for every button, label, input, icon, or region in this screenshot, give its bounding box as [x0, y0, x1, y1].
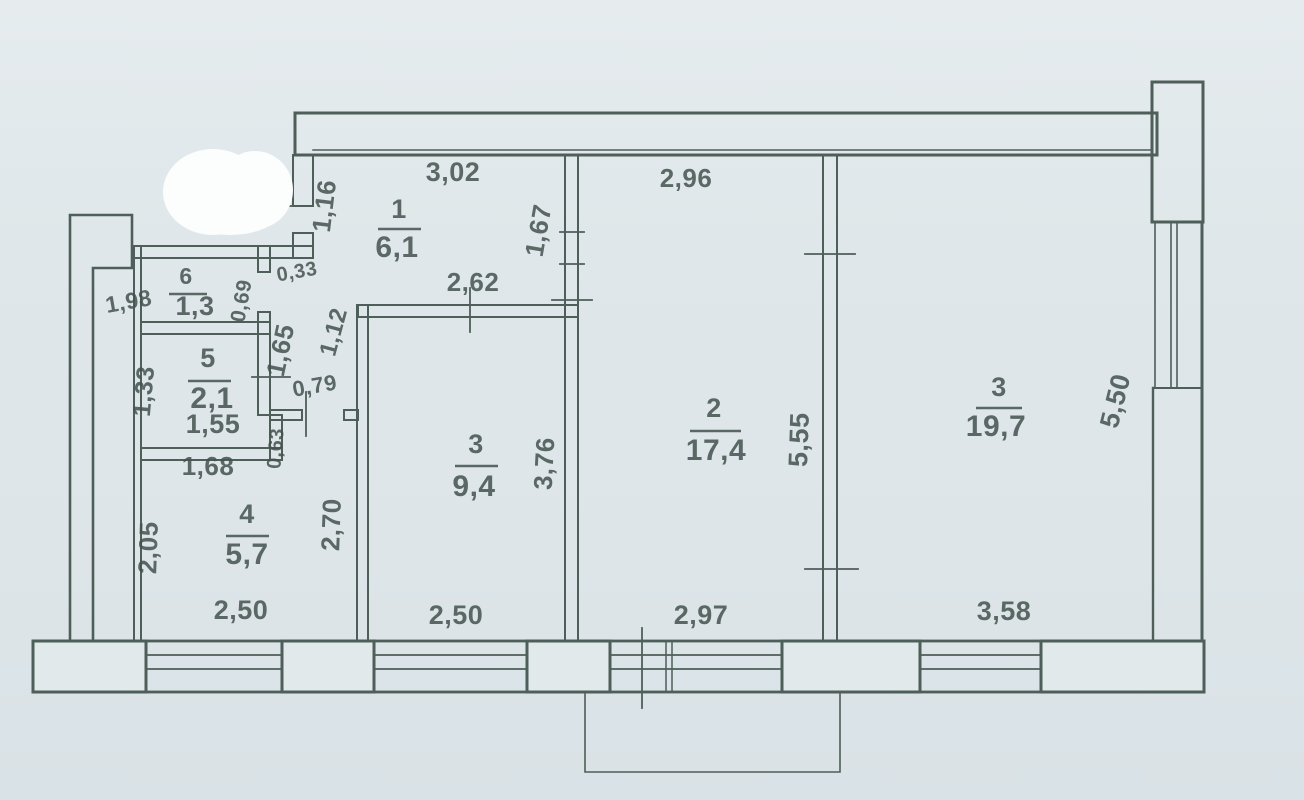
dimension-label: 1,65	[260, 321, 300, 379]
room-number: 3	[991, 372, 1007, 402]
wall-top-band	[295, 113, 1157, 155]
dimension-label: 5,50	[1094, 371, 1136, 431]
room-area: 19,7	[966, 410, 1026, 443]
room-number: 4	[239, 499, 255, 529]
dimension-label: 3,58	[977, 596, 1032, 626]
room-area: 9,4	[452, 470, 495, 503]
wall-bottom-pier-3	[527, 641, 610, 692]
wall-bottom-pier-5	[1041, 641, 1204, 692]
room-area: 17,4	[686, 434, 746, 467]
wall-room3mid-left	[357, 305, 368, 641]
wall-bottom-pier-4	[782, 641, 920, 692]
wall-room6-room5-divider	[141, 322, 270, 334]
dimension-label: 1,12	[314, 305, 353, 359]
room-number: 1	[391, 194, 407, 224]
floor-plan-drawing: 16,1217,4319,739,445,752,161,33,022,961,…	[0, 0, 1304, 800]
wall-right-pier-top	[1152, 82, 1203, 222]
dimension-label: 0,69	[227, 278, 257, 324]
room-number: 5	[200, 343, 216, 373]
room-area: 1,3	[175, 291, 214, 321]
dimension-label: 0,33	[275, 258, 319, 287]
dimension-label: 1,16	[306, 178, 342, 234]
room-area: 6,1	[375, 231, 418, 264]
dimension-label: 2,96	[660, 163, 713, 193]
dimension-label: 2,05	[132, 521, 164, 575]
dimension-label: 1,98	[103, 284, 154, 318]
dimension-label: 2,62	[447, 267, 500, 297]
wall-hall-door-right	[344, 410, 358, 420]
wall-bottom-pier-2	[282, 641, 374, 692]
erased-blob	[163, 149, 293, 235]
dimension-label: 2,70	[315, 498, 347, 552]
balcony-outline	[585, 692, 840, 772]
wall-bottom-pier-1	[33, 641, 146, 692]
dimension-label: 1,68	[182, 451, 235, 481]
wall-corridor-room2	[565, 155, 578, 641]
wall-room6-top	[134, 246, 313, 258]
dimension-label: 0,63	[263, 427, 288, 470]
wall-left-outer	[70, 215, 132, 641]
dimension-label: 2,50	[429, 600, 484, 630]
room-number: 3	[468, 429, 484, 459]
dimension-label: 5,55	[783, 412, 815, 468]
dimension-label: 1,33	[128, 365, 160, 418]
dimension-label: 1,55	[186, 409, 241, 439]
balcony-door-divider	[666, 641, 672, 692]
dimension-label: 3,76	[528, 436, 561, 490]
room-number: 2	[706, 393, 722, 423]
dimension-label: 3,02	[426, 157, 481, 187]
floor-plan-scan: 16,1217,4319,739,445,752,161,33,022,961,…	[0, 0, 1304, 800]
dimension-label: 2,97	[674, 600, 729, 630]
dimension-label: 1,67	[519, 202, 558, 259]
dimension-label: 2,50	[214, 595, 269, 625]
room-area: 5,7	[225, 538, 268, 571]
room-number: 6	[179, 263, 192, 289]
dimension-label: 0,79	[290, 369, 338, 401]
wall-bottom-band	[33, 641, 1204, 692]
wall-room3mid-top	[358, 305, 578, 317]
